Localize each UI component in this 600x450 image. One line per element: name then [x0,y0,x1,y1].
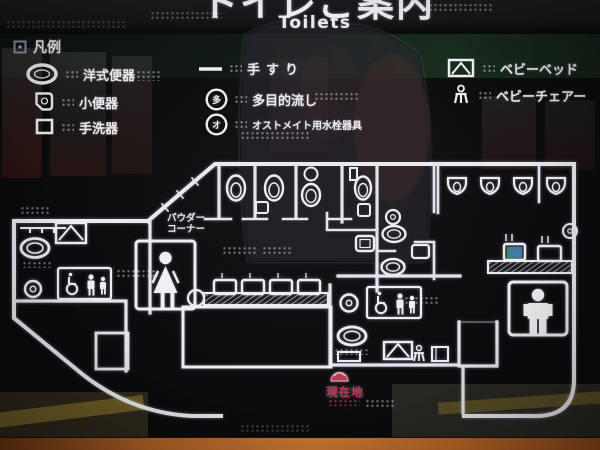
svg-text:オ: オ [212,120,221,131]
current-location-marker [331,373,348,382]
legend-title-row: 凡例 [12,37,61,57]
western-toilet-icon [24,62,60,86]
urinal-row [448,178,565,194]
legend-item-label: オストメイト用水栓器具 [252,117,362,132]
braille-dots [234,120,247,129]
fixture [432,347,448,361]
powder-corner-label-line1: パウダー [167,212,205,224]
svg-text:多: 多 [212,94,221,106]
legend-item-label: 小便器 [79,93,118,112]
braille-dots [478,91,491,100]
sign-title-english: Toilets [0,13,600,33]
hand-wash-basin-icon [214,280,236,294]
mens-wash-counter [488,224,577,273]
urinal-icon [448,178,466,194]
womens-toilet-sign [136,241,195,309]
woman-icon [154,252,178,308]
legend-item-label: ベビーベッド [500,59,578,78]
braille-dots [61,98,74,107]
urinal-icon [514,178,532,194]
hand-wash-basin-icon [298,280,320,294]
toilet-icon [21,239,49,258]
powder-corner-label-line2: コーナー [167,224,205,235]
left-accessible-room [20,223,111,299]
counter [20,228,66,233]
hand-wash-basin-icon [33,117,56,137]
legend-item-label: 洋式便器 [83,65,135,84]
legend-item: 洋式便器 [24,62,135,86]
braille-dots [65,70,78,79]
legend-item-label: ベビーチェアー [496,86,586,105]
hand-wash-basin-icon [538,246,561,261]
mens-toilet-sign [509,282,567,335]
braille-dots [482,64,495,73]
photographer-reflection [240,21,431,262]
ostomate-fixture-icon [25,281,41,297]
ostomate-fixture-icon [341,295,358,312]
faucet-marks [506,234,548,243]
counter-box [183,307,331,367]
baby-bed-icon [56,223,86,243]
braille-dots [234,95,247,104]
legend-item-label: 手洗器 [79,118,118,137]
legend-item: オ オストメイト用水栓器具 [204,112,362,137]
braille-dots [229,64,242,73]
urinal-icon [547,178,565,194]
legend-marker-icon [12,39,28,55]
accessible-toilet-sign [367,287,421,318]
wheelchair-icon [67,273,77,294]
legend-item: 小便器 [32,90,118,115]
legend-item: ベビーチェアー [450,83,586,107]
man-icon [524,289,553,335]
wheelchair-icon [376,292,386,313]
sign-frame-bottom [0,437,600,450]
braille-dots [61,123,74,132]
legend-item: ベビーベッド [446,57,578,79]
center-wash-counter [183,273,331,367]
baby-chair-icon [414,346,424,362]
legend-item-label: 多目的流し [252,90,317,109]
adult-and-child-icon [397,293,416,314]
legend-item: 手すり [197,59,304,78]
faucet-marks [222,273,306,278]
handrail-icon [197,63,224,75]
urinal-icon [32,90,56,115]
ostomate-fixture-icon: オ [204,112,229,137]
multi-purpose-sink-icon: 多 [204,87,229,112]
urinal-icon [481,178,499,194]
hand-wash-basin-icon [242,280,264,294]
legend-item: 手洗器 [33,117,118,137]
baby-bed-icon [384,342,412,359]
adult-and-child-icon [88,274,107,295]
baby-chair-icon [450,83,473,107]
baby-bed-icon [446,57,477,79]
toilet-icon [338,327,366,345]
current-location-label: 現在地 [326,385,364,399]
bottom-accessible-room [338,287,448,361]
accessible-toilet-sign [58,268,111,299]
hand-wash-basin-icon [270,280,292,294]
legend-item: 多 多目的流し [204,87,317,112]
legend-item-label: 手すり [247,59,304,78]
legend-title: 凡例 [33,37,61,57]
toilet-guide-sign-photo: パウダー コーナー [0,0,600,450]
fixture [338,352,360,361]
